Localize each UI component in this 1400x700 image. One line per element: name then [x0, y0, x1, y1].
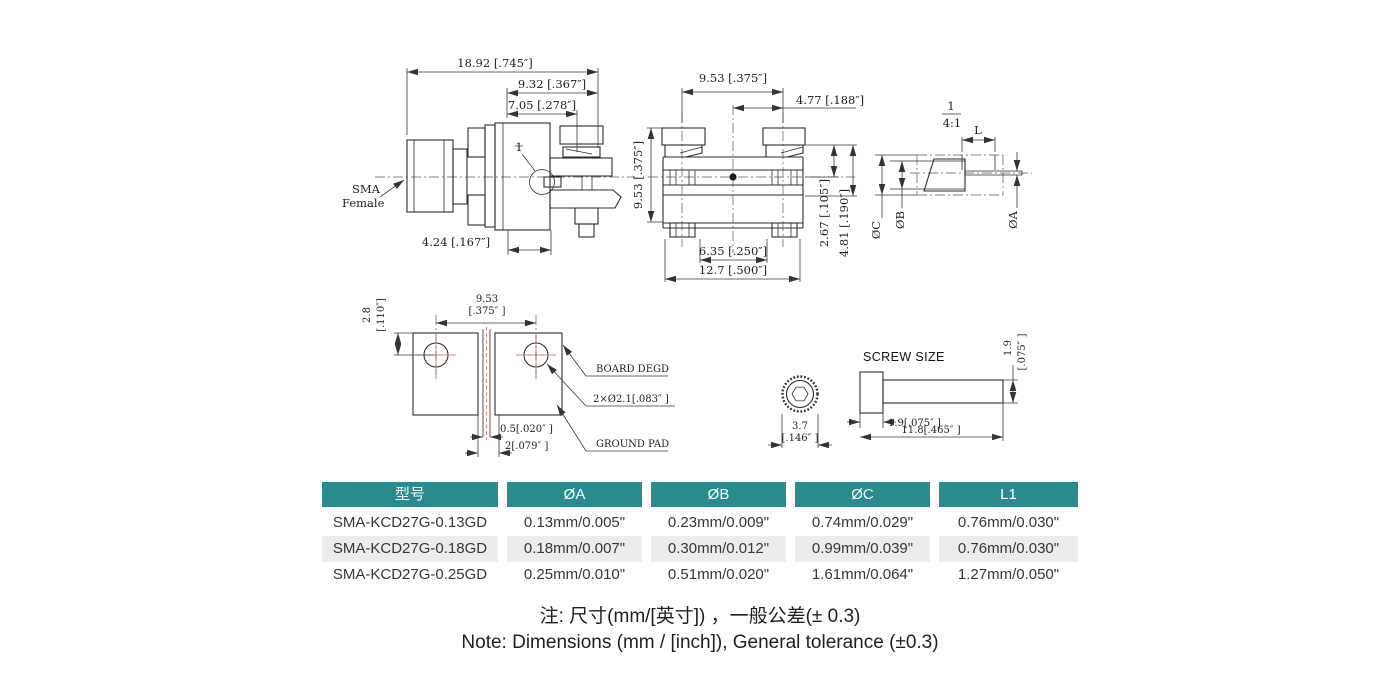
dim-0-5: 0.5[.020″ ] — [500, 424, 553, 435]
callout-1: 1 — [515, 140, 522, 154]
dim-4-24: 4.24 [.167″] — [422, 235, 490, 249]
screw-drawing: SCREW SIZE 3.7 [.146″ ] 1.9[.075″ ] 11.8… — [760, 330, 1045, 475]
label-sma: SMA — [352, 182, 381, 196]
detail-cable-body — [890, 155, 1032, 195]
detail-scale-label: 1 4:1 — [942, 99, 961, 130]
cell-dia-c: 0.74mm/0.029" — [795, 510, 930, 536]
col-header-model: 型号 — [322, 482, 498, 507]
cell-dia-a: 0.18mm/0.007" — [507, 536, 642, 562]
detail-view-drawing: 1 4:1 L ØC ØB ØA — [860, 90, 1045, 245]
cell-l1: 1.27mm/0.050" — [939, 562, 1078, 588]
cell-dia-c: 1.61mm/0.064" — [795, 562, 930, 588]
col-header-dia-b: ØB — [651, 482, 786, 507]
dim-2-8-mm: 2.8 — [362, 307, 373, 323]
dim-2-67: 2.67 [.105″] — [817, 179, 831, 247]
front-view-drawing: 9.53 [.375″] 4.77 [.188″] 9.53 [.375″] 6… — [620, 55, 880, 295]
detail-callout-number: 1 — [947, 99, 954, 113]
cell-dia-b: 0.23mm/0.009" — [651, 510, 786, 536]
cell-dia-b: 0.51mm/0.020" — [651, 562, 786, 588]
screw-end-view: 3.7 [.146″ ] — [768, 377, 832, 449]
label-board-edge: BOARD DEGD — [596, 364, 669, 375]
dim-9-32: 9.32 [.367″] — [518, 77, 586, 91]
side-view-drawing: 18.92 [.745″] 9.32 [.367″] 7.05 [.278″] … — [330, 40, 660, 295]
dim-11-8: 11.8[.465″ ] — [901, 425, 960, 436]
screw-side-view — [860, 372, 1003, 413]
dim-3-7-mm: 3.7 — [792, 421, 808, 432]
dim-3-7-inch: [.146″ ] — [782, 433, 819, 444]
dim-4-77: 4.77 [.188″] — [796, 93, 864, 107]
dim-9-53-left: 9.53 [.375″] — [631, 141, 645, 209]
board-layout-drawing: 9.53 [.375″ ] 2.8 [.110″] 0.5[.020″ ] 2[… — [350, 285, 695, 475]
col-header-dia-c: ØC — [795, 482, 930, 507]
datasheet-page: 18.92 [.745″] 9.32 [.367″] 7.05 [.278″] … — [0, 0, 1400, 700]
dim-1-9v-mm: 1.9 — [1003, 340, 1014, 356]
cell-dia-b: 0.30mm/0.012" — [651, 536, 786, 562]
dim-2-8-inch: [.110″] — [376, 298, 387, 332]
dim-4-81: 4.81 [.190″] — [837, 189, 851, 257]
cell-l1: 0.76mm/0.030" — [939, 536, 1078, 562]
cell-dia-a: 0.25mm/0.010" — [507, 562, 642, 588]
label-ground-pad: GROUND PAD — [596, 439, 669, 450]
side-view-body — [375, 123, 635, 237]
dim-2: 2[.079″ ] — [505, 441, 548, 452]
dia-c-label: ØC — [869, 221, 883, 239]
dim-9-53-inch: [.375″ ] — [469, 306, 506, 317]
cell-model: SMA-KCD27G-0.18GD — [322, 536, 498, 562]
board-labels: BOARD DEGD 2×Ø2.1[.083″ ] GROUND PAD — [547, 345, 675, 451]
front-view-dimensions: 9.53 [.375″] 4.77 [.188″] 9.53 [.375″] 6… — [631, 71, 864, 282]
detail-dimensions: L ØC ØB ØA — [869, 123, 1020, 239]
center-pin-dot — [729, 173, 736, 180]
cell-dia-c: 0.99mm/0.039" — [795, 536, 930, 562]
board-dimensions: 9.53 [.375″ ] 2.8 [.110″] 0.5[.020″ ] 2[… — [362, 294, 553, 457]
dim-18-92: 18.92 [.745″] — [457, 56, 532, 70]
dia-a-label: ØA — [1006, 210, 1020, 228]
dim-9-53-top: 9.53 [.375″] — [699, 71, 767, 85]
cell-dia-a: 0.13mm/0.005" — [507, 510, 642, 536]
cell-l1: 0.76mm/0.030" — [939, 510, 1078, 536]
col-header-dia-a: ØA — [507, 482, 642, 507]
label-holes: 2×Ø2.1[.083″ ] — [593, 394, 669, 405]
dim-L: L — [974, 123, 982, 137]
cell-model: SMA-KCD27G-0.13GD — [322, 510, 498, 536]
dim-6-35: 6.35 [.250″] — [699, 244, 767, 258]
label-female: Female — [342, 196, 385, 210]
dim-7-05: 7.05 [.278″] — [508, 98, 576, 112]
screw-size-title: SCREW SIZE — [863, 350, 945, 364]
cell-model: SMA-KCD27G-0.25GD — [322, 562, 498, 588]
dim-1-9v-inch: [.075″ ] — [1017, 333, 1028, 370]
dia-b-label: ØB — [893, 211, 907, 229]
col-header-l1: L1 — [939, 482, 1078, 507]
dim-9-53-mm: 9.53 — [476, 294, 498, 305]
note-english: Note: Dimensions (mm / [inch]), General … — [0, 630, 1400, 656]
note-chinese: 注: 尺寸(mm/[英寸]) ，一般公差(± 0.3) — [0, 604, 1400, 630]
detail-scale: 4:1 — [943, 116, 962, 130]
notes-block: 注: 尺寸(mm/[英寸]) ，一般公差(± 0.3) Note: Dimens… — [0, 604, 1400, 656]
spec-table: 型号 ØA ØB ØC L1 SMA-KCD27G-0.13GD 0.13mm/… — [322, 482, 1078, 588]
dim-12-7: 12.7 [.500″] — [699, 263, 767, 277]
